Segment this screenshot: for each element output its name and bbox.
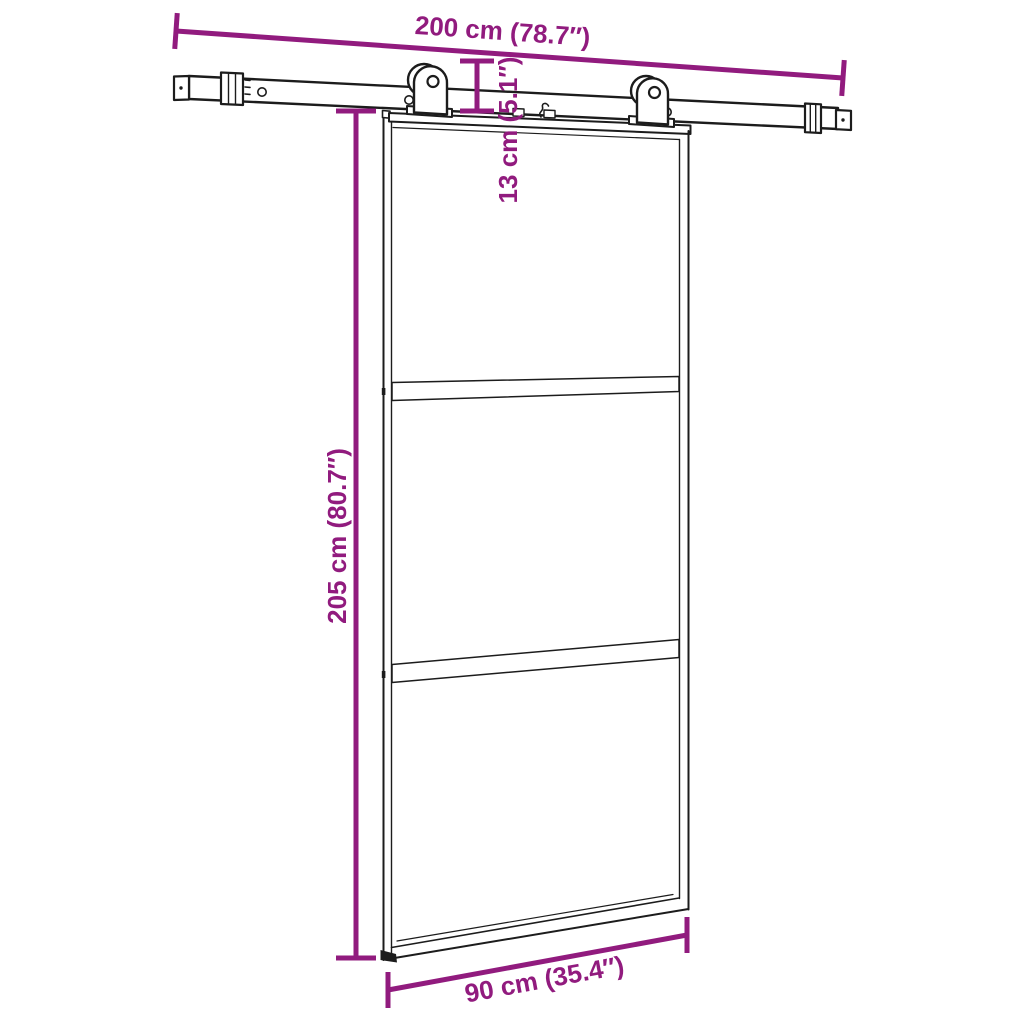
rail-screw-hole: [405, 96, 413, 104]
anti-jump-block: [544, 110, 555, 118]
dimension-label-hanger-drop: 13 cm (5.1″): [493, 57, 523, 204]
roller-hanger-left: [407, 64, 452, 117]
dimension-hanger-drop: 13 cm (5.1″): [460, 57, 523, 204]
door-stile-fitting-mark: [382, 671, 386, 678]
door-panel: [381, 109, 691, 963]
door-bottom-rail-top: [392, 898, 680, 948]
dimension-cap: [175, 13, 178, 49]
axle-bolt: [428, 76, 439, 87]
axle-bolt: [649, 87, 660, 98]
rail-screw-hole: [258, 88, 266, 96]
rail-right-connector: [805, 104, 821, 134]
door-divider-upper: [392, 377, 679, 401]
door-stile-fitting-mark: [382, 388, 386, 395]
hanger-strap: [414, 66, 447, 114]
roller-hanger-right: [629, 76, 674, 127]
sliding-door-dimension-diagram: 200 cm (78.7″) 13 cm (5.1″) 205 cm (80.7…: [0, 0, 1024, 1024]
rail-right-cap-pin: [841, 118, 844, 121]
dimension-label-door-width: 90 cm (35.4″): [462, 950, 626, 1009]
dimension-cap: [842, 60, 845, 96]
hanger-strap: [637, 78, 668, 124]
door-divider-lower: [392, 640, 679, 683]
dimension-label-rail-length: 200 cm (78.7″): [414, 10, 591, 52]
rail-left-connector: [221, 73, 243, 106]
dimension-door-height: 205 cm (80.7″): [322, 111, 376, 958]
rail-left-cap-pin: [179, 86, 182, 89]
dimension-label-door-height: 205 cm (80.7″): [322, 448, 352, 624]
dimension-door-width: 90 cm (35.4″): [388, 917, 687, 1008]
